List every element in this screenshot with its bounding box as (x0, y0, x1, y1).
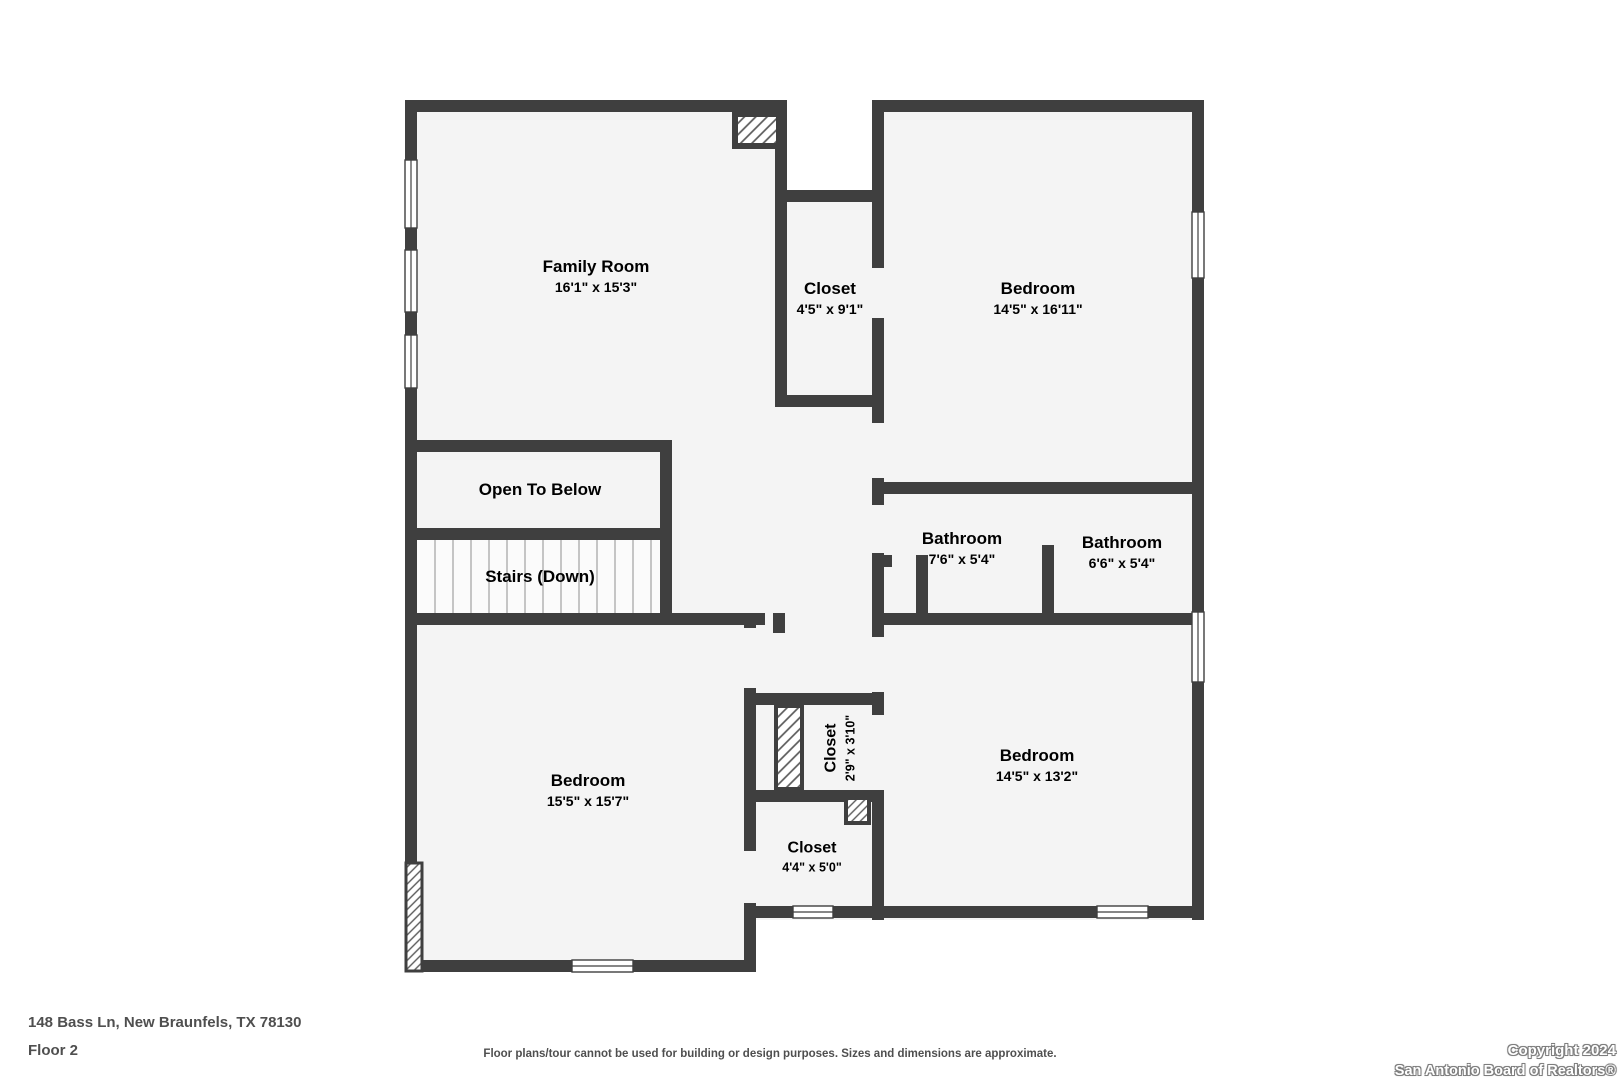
bedroom-bottom-left-name: Bedroom (547, 770, 629, 792)
floor-plan-page: Family Room 16'1" x 15'3" Closet 4'5" x … (0, 0, 1620, 1080)
room-label-stairs: Stairs (Down) (485, 566, 595, 588)
open-to-below-name: Open To Below (479, 479, 601, 501)
floor-plan-drawing (0, 0, 1620, 1080)
room-label-open-to-below: Open To Below (479, 479, 601, 501)
hatch-wall-left (406, 863, 422, 971)
room-label-family-room: Family Room 16'1" x 15'3" (543, 256, 650, 296)
room-label-bedroom-top: Bedroom 14'5" x 16'11" (993, 278, 1082, 318)
copyright-line1: Copyright 2024 (1395, 1040, 1616, 1061)
bedroom-top-name: Bedroom (993, 278, 1082, 300)
window-right-top (1192, 212, 1204, 278)
window-bottom-bedroom-left (572, 960, 633, 972)
window-left-1 (405, 160, 417, 228)
bathroom-left-name: Bathroom (922, 528, 1002, 550)
bathroom-right-dims: 6'6" x 5'4" (1082, 554, 1162, 572)
room-label-bedroom-bottom-right: Bedroom 14'5" x 13'2" (996, 745, 1078, 785)
room-label-closet-rotated: Closet 2'9" x 3'10" (821, 715, 858, 781)
bedroom-bottom-right-dims: 14'5" x 13'2" (996, 767, 1078, 785)
hatch-box-top (735, 114, 779, 146)
closet-bottom-dims: 4'4" x 5'0" (782, 859, 842, 875)
disclaimer-text: Floor plans/tour cannot be used for buil… (483, 1048, 1056, 1060)
address-text: 148 Bass Ln, New Braunfels, TX 78130 (28, 1014, 301, 1031)
hatch-box-small (846, 798, 869, 823)
window-bottom-closet (793, 906, 833, 918)
closet-rotated-name: Closet (821, 715, 842, 781)
family-room-name: Family Room (543, 256, 650, 278)
closet-top-name: Closet (797, 278, 864, 300)
copyright-line2: San Antonio Board of Realtors® (1395, 1061, 1616, 1080)
closet-top-dims: 4'5" x 9'1" (797, 300, 864, 318)
stairs-name: Stairs (Down) (485, 566, 595, 588)
room-label-bathroom-right: Bathroom 6'6" x 5'4" (1082, 532, 1162, 572)
bathroom-right-name: Bathroom (1082, 532, 1162, 554)
floor-label: Floor 2 (28, 1042, 78, 1059)
closet-bottom-name: Closet (782, 838, 842, 859)
window-bottom-bedroom-right (1097, 906, 1148, 918)
room-label-closet-bottom: Closet 4'4" x 5'0" (782, 838, 842, 875)
window-left-2 (405, 250, 417, 312)
bedroom-bottom-left-dims: 15'5" x 15'7" (547, 792, 629, 810)
room-label-closet-top: Closet 4'5" x 9'1" (797, 278, 864, 318)
family-room-dims: 16'1" x 15'3" (543, 278, 650, 296)
bedroom-top-dims: 14'5" x 16'11" (993, 300, 1082, 318)
window-left-3 (405, 335, 417, 388)
bedroom-bottom-right-name: Bedroom (996, 745, 1078, 767)
room-label-bedroom-bottom-left: Bedroom 15'5" x 15'7" (547, 770, 629, 810)
hatch-strip-closet (776, 706, 802, 789)
window-right-bottom (1192, 612, 1204, 682)
copyright-text: Copyright 2024 San Antonio Board of Real… (1395, 1040, 1616, 1080)
bathroom-left-dims: 7'6" x 5'4" (922, 550, 1002, 568)
closet-rotated-dims: 2'9" x 3'10" (842, 715, 858, 781)
room-label-bathroom-left: Bathroom 7'6" x 5'4" (922, 528, 1002, 568)
